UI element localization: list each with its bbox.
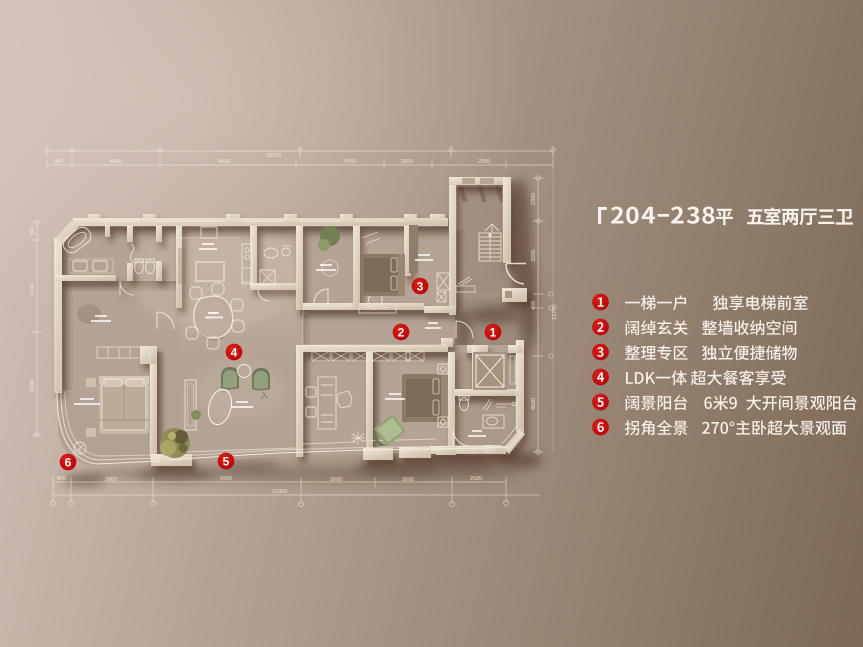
svg-text:2050: 2050 (401, 159, 413, 165)
svg-text:4500: 4500 (531, 398, 537, 410)
svg-text:3700: 3700 (30, 283, 36, 295)
svg-text:6900: 6900 (220, 476, 232, 482)
svg-text:6: 6 (65, 456, 72, 470)
svg-text:2580: 2580 (478, 159, 490, 165)
svg-text:4400: 4400 (218, 159, 230, 165)
svg-text:4400: 4400 (109, 159, 121, 165)
svg-text:3000: 3000 (402, 477, 414, 483)
svg-text:5: 5 (223, 455, 230, 469)
svg-text:2300: 2300 (531, 193, 537, 205)
svg-text:450: 450 (531, 301, 537, 310)
svg-text:3: 3 (417, 280, 424, 294)
svg-text:4200: 4200 (30, 380, 36, 392)
svg-text:700: 700 (30, 227, 36, 236)
svg-text:4: 4 (231, 346, 238, 360)
svg-text:4750: 4750 (344, 159, 356, 165)
svg-text:800: 800 (57, 476, 66, 482)
svg-text:3000: 3000 (330, 477, 342, 483)
svg-text:1: 1 (490, 326, 497, 340)
svg-text:3250: 3250 (531, 250, 537, 262)
svg-text:2800: 2800 (105, 477, 117, 483)
svg-text:2580: 2580 (470, 476, 482, 482)
svg-text:2: 2 (398, 326, 405, 340)
svg-text:21900: 21900 (272, 489, 287, 495)
svg-text:800: 800 (54, 159, 63, 165)
svg-text:20200: 20200 (266, 153, 281, 159)
svg-text:12700: 12700 (552, 305, 558, 320)
